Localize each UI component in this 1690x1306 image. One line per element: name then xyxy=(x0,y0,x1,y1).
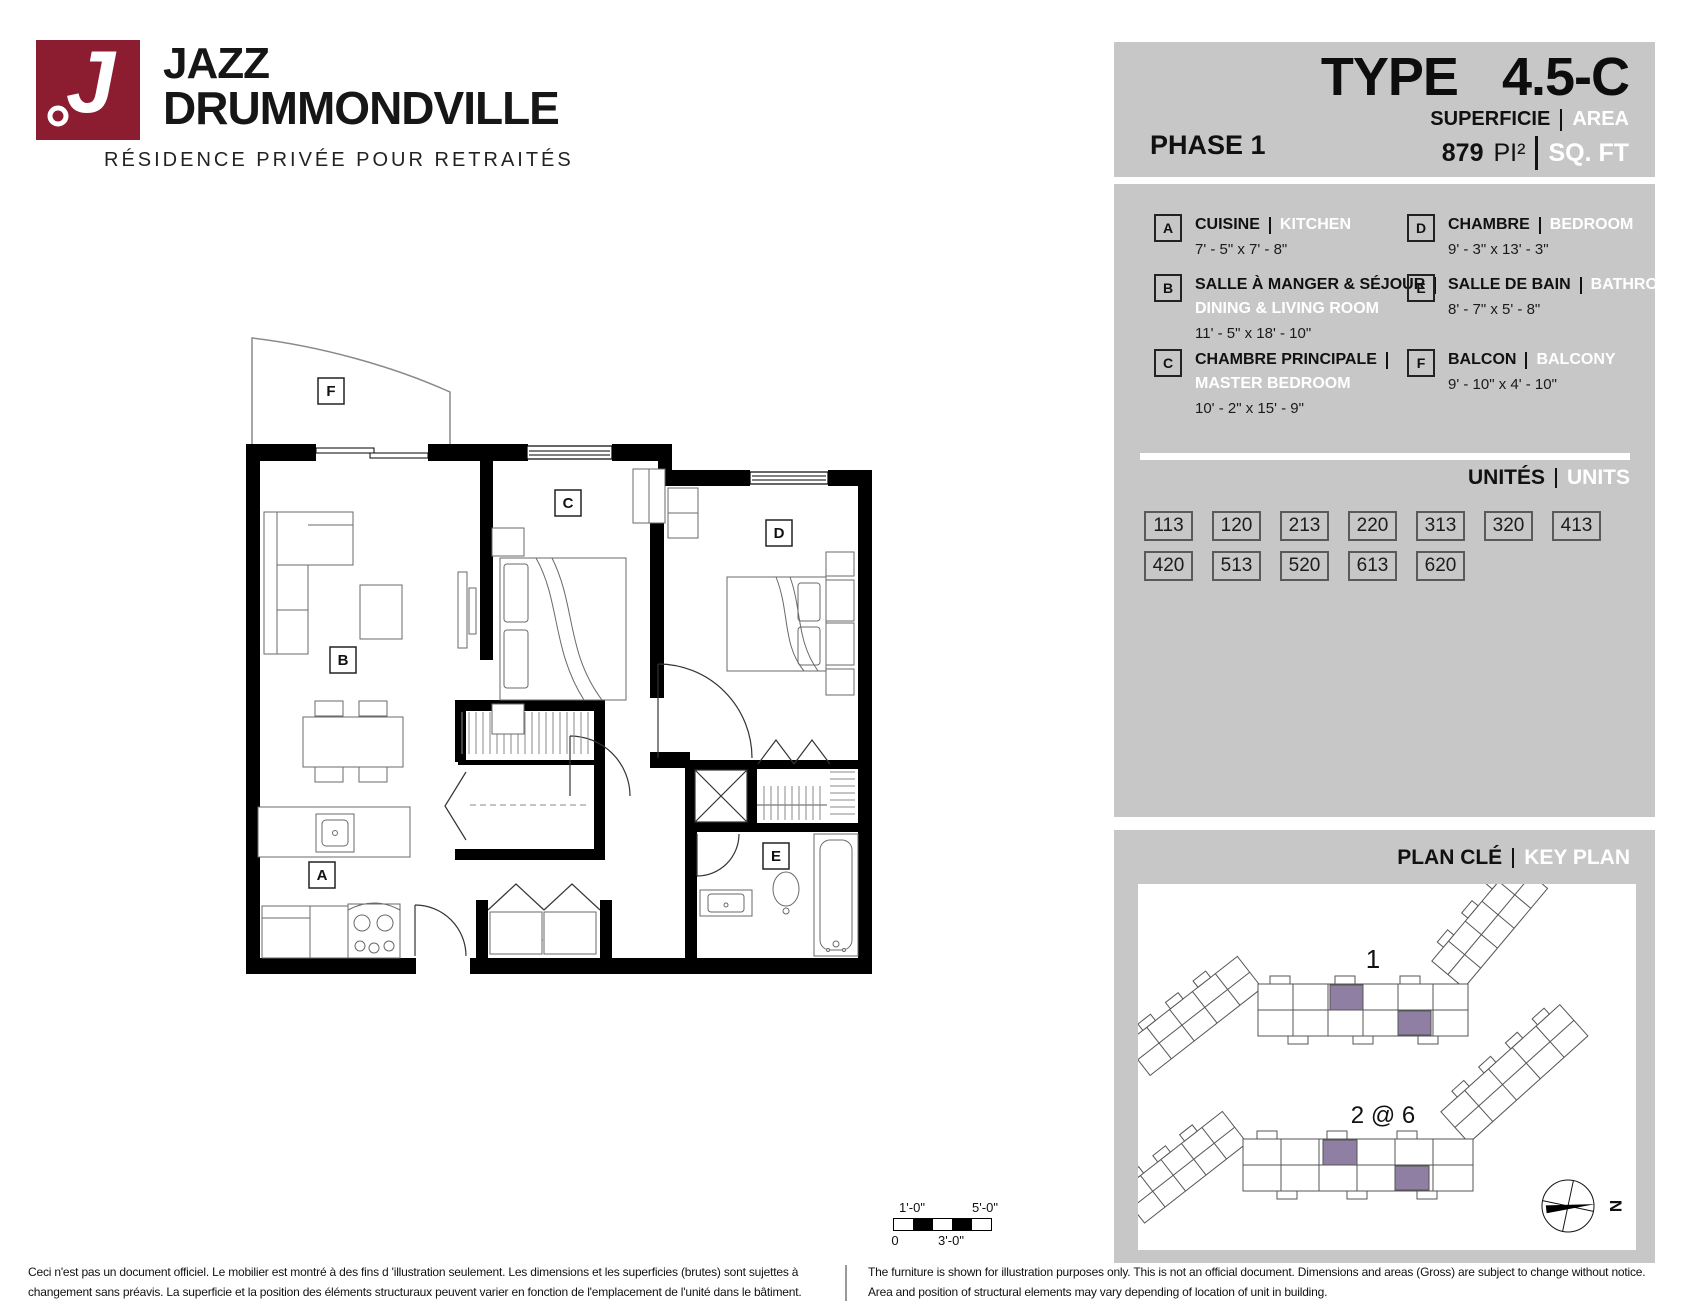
svg-text:D: D xyxy=(774,525,785,542)
area-unit-en: SQ. FT xyxy=(1548,139,1629,168)
units-title-fr: UNITÉS xyxy=(1468,466,1545,490)
room-name-fr: CUISINE xyxy=(1195,216,1260,234)
area-label-en: AREA xyxy=(1572,108,1629,131)
units-title-en: UNITS xyxy=(1567,466,1630,490)
north-compass-icon: N xyxy=(1537,1175,1625,1237)
unit-number-row: 113120213220313320413 xyxy=(1144,511,1601,541)
keyplan-title: PLAN CLÉ KEY PLAN xyxy=(1397,846,1630,870)
legend-item-living: B SALLE À MANGER & SÉJOUR DINING & LIVIN… xyxy=(1154,274,1436,342)
patio-door xyxy=(316,448,374,453)
room-dims: 10' - 2" x 15' - 9" xyxy=(1195,400,1388,417)
floor-plan-svg: F B C D A E xyxy=(240,330,890,980)
unit-type-title: TYPE 4.5-C xyxy=(1321,50,1629,104)
legend-item-master-bedroom: C CHAMBRE PRINCIPALE MASTER BEDROOM 10' … xyxy=(1154,349,1388,417)
building-1-footprint: 1 xyxy=(1138,884,1548,1075)
balcony-outline xyxy=(252,338,450,444)
svg-text:C: C xyxy=(563,495,574,512)
scale-label: 0 xyxy=(891,1233,898,1248)
room-key-badge: A xyxy=(1154,214,1182,242)
area-label-fr: SUPERFICIE xyxy=(1430,108,1550,131)
room-key-badge: B xyxy=(1154,274,1182,302)
north-label: N xyxy=(1606,1200,1625,1212)
scale-label: 1'-0" xyxy=(899,1200,925,1215)
room-key-badge: E xyxy=(1407,274,1435,302)
brand-line2: DRUMMONDVILLE xyxy=(163,86,559,130)
room-name-fr: CHAMBRE xyxy=(1448,216,1530,234)
separator xyxy=(1525,352,1527,369)
room-label-D: D xyxy=(766,520,792,546)
legend-item-balcony: F BALCONBALCONY 9' - 10" x 4' - 10" xyxy=(1407,349,1616,393)
separator xyxy=(1512,848,1514,868)
type-label: TYPE xyxy=(1321,50,1458,104)
svg-text:B: B xyxy=(338,652,349,669)
room-name-fr: CHAMBRE PRINCIPALE xyxy=(1195,351,1377,369)
disclaimer-fr-line2: changement sans préavis. La superficie e… xyxy=(28,1282,802,1302)
disclaimer-en-line2: Area and position of structural elements… xyxy=(868,1282,1645,1302)
logo-monogram-icon: J xyxy=(36,40,140,140)
room-key-badge: D xyxy=(1407,214,1435,242)
room-label-C: C xyxy=(555,490,581,516)
divider xyxy=(845,1265,847,1301)
room-key-badge: C xyxy=(1154,349,1182,377)
room-dims: 9' - 3" x 13' - 3" xyxy=(1448,241,1633,258)
legend-item-bedroom: D CHAMBREBEDROOM 9' - 3" x 13' - 3" xyxy=(1407,214,1633,258)
area-value: 879 xyxy=(1442,139,1484,168)
room-name-en: BALCONY xyxy=(1536,351,1615,369)
room-name-en: BATHROOM xyxy=(1591,276,1684,294)
svg-text:F: F xyxy=(326,383,335,400)
legend-panel: A CUISINEKITCHEN 7' - 5" x 7' - 8" B SAL… xyxy=(1114,184,1655,817)
logo-monogram: J xyxy=(66,40,117,131)
disclaimer-en: The furniture is shown for illustration … xyxy=(868,1262,1645,1302)
unit-badge: 613 xyxy=(1348,551,1397,581)
unit-badge: 620 xyxy=(1416,551,1465,581)
scale-bar-graphic xyxy=(893,1218,992,1231)
phase-label: PHASE 1 xyxy=(1150,130,1266,161)
unit-badge: 520 xyxy=(1280,551,1329,581)
room-label-A: A xyxy=(309,862,335,888)
separator xyxy=(1560,109,1562,131)
room-name-fr: SALLE À MANGER & SÉJOUR xyxy=(1195,276,1425,294)
units-title: UNITÉS UNITS xyxy=(1468,466,1630,490)
unit-badge: 513 xyxy=(1212,551,1261,581)
windows xyxy=(316,446,828,484)
brand-name: JAZZ DRUMMONDVILLE xyxy=(163,42,559,130)
disclaimer-fr: Ceci n'est pas un document officiel. Le … xyxy=(28,1262,802,1302)
room-label-B: B xyxy=(330,647,356,673)
keyplan-svg: 1 xyxy=(1138,884,1636,1250)
separator xyxy=(1580,277,1582,294)
svg-text:A: A xyxy=(317,867,328,884)
room-dims: 7' - 5" x 7' - 8" xyxy=(1195,241,1351,258)
keyplan-title-fr: PLAN CLÉ xyxy=(1397,846,1502,870)
type-value: 4.5-C xyxy=(1502,50,1629,104)
brand-logo: J xyxy=(36,40,140,140)
building-2-label: 2 @ 6 xyxy=(1351,1102,1415,1129)
unit-badge: 113 xyxy=(1144,511,1193,541)
room-label-F: F xyxy=(318,378,344,404)
scale-label: 5'-0" xyxy=(972,1200,998,1215)
area-unit-fr: PI² xyxy=(1493,139,1525,168)
room-label-E: E xyxy=(763,843,789,869)
keyplan-title-en: KEY PLAN xyxy=(1524,846,1630,870)
unit-number-row: 420513520613620 xyxy=(1144,551,1465,581)
room-name-en: KITCHEN xyxy=(1280,216,1351,234)
disclaimer-fr-line1: Ceci n'est pas un document officiel. Le … xyxy=(28,1262,802,1282)
unit-badge: 413 xyxy=(1552,511,1601,541)
separator xyxy=(1535,136,1538,170)
keyplan-map: 1 xyxy=(1138,884,1636,1250)
floorplan-sheet: J JAZZ DRUMMONDVILLE RÉSIDENCE PRIVÉE PO… xyxy=(0,0,1690,1306)
unit-badge: 220 xyxy=(1348,511,1397,541)
highlighted-unit xyxy=(1330,985,1363,1010)
area-value-row: 879 PI² SQ. FT xyxy=(1442,136,1629,170)
unit-badge: 313 xyxy=(1416,511,1465,541)
divider xyxy=(1140,453,1630,460)
header-panel: TYPE 4.5-C SUPERFICIE AREA 879 PI² SQ. F… xyxy=(1114,42,1655,177)
building-1-label: 1 xyxy=(1366,944,1380,974)
unit-badge: 213 xyxy=(1280,511,1329,541)
unit-badge: 320 xyxy=(1484,511,1533,541)
highlighted-unit xyxy=(1323,1140,1357,1165)
separator xyxy=(1269,217,1271,234)
room-name-en: MASTER BEDROOM xyxy=(1195,375,1388,393)
room-dims: 11' - 5" x 18' - 10" xyxy=(1195,325,1436,342)
highlighted-unit xyxy=(1398,1011,1431,1035)
svg-text:E: E xyxy=(771,848,781,865)
elevator-shaft xyxy=(695,770,747,822)
area-labels: SUPERFICIE AREA xyxy=(1430,108,1629,131)
room-name-fr: SALLE DE BAIN xyxy=(1448,276,1571,294)
separator xyxy=(1539,217,1541,234)
room-name-en: DINING & LIVING ROOM xyxy=(1195,300,1436,318)
separator xyxy=(1555,468,1557,488)
unit-badge: 420 xyxy=(1144,551,1193,581)
separator xyxy=(1386,352,1388,369)
highlighted-unit xyxy=(1395,1166,1429,1190)
legend-item-bathroom: E SALLE DE BAINBATHROOM 8' - 7" x 5' - 8… xyxy=(1407,274,1684,318)
legend-item-kitchen: A CUISINEKITCHEN 7' - 5" x 7' - 8" xyxy=(1154,214,1351,258)
disclaimer-en-line1: The furniture is shown for illustration … xyxy=(868,1262,1645,1282)
room-name-en: BEDROOM xyxy=(1550,216,1634,234)
brand-line1: JAZZ xyxy=(163,42,559,86)
room-dims: 9' - 10" x 4' - 10" xyxy=(1448,376,1616,393)
room-key-badge: F xyxy=(1407,349,1435,377)
unit-badge: 120 xyxy=(1212,511,1261,541)
scale-label: 3'-0" xyxy=(938,1233,964,1248)
room-name-fr: BALCON xyxy=(1448,351,1516,369)
keyplan-panel: PLAN CLÉ KEY PLAN xyxy=(1114,830,1655,1263)
brand-tagline: RÉSIDENCE PRIVÉE POUR RETRAITÉS xyxy=(104,149,574,172)
room-dims: 8' - 7" x 5' - 8" xyxy=(1448,301,1684,318)
